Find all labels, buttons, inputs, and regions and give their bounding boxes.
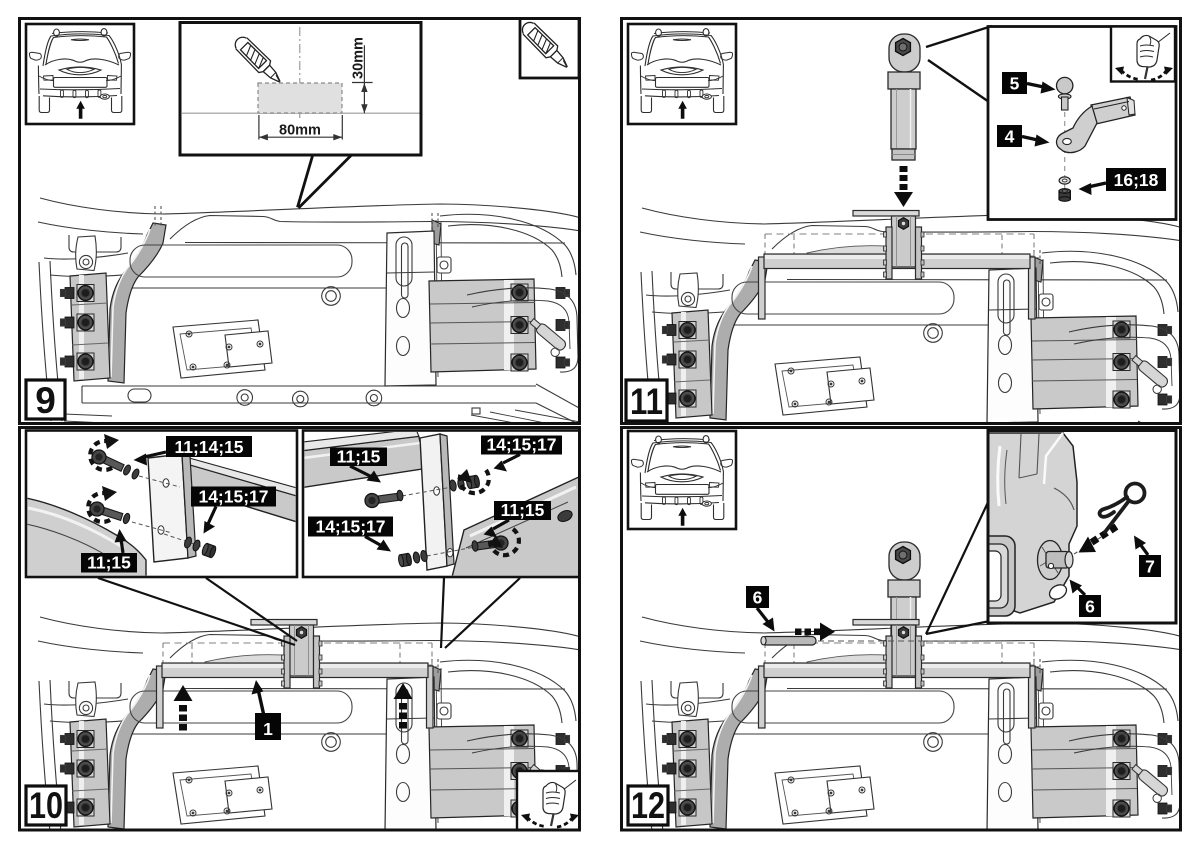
svg-text:16;18: 16;18 xyxy=(1114,170,1159,190)
svg-text:11;15: 11;15 xyxy=(87,553,131,573)
svg-text:10: 10 xyxy=(29,785,63,826)
svg-text:14;15;17: 14;15;17 xyxy=(315,517,385,537)
svg-text:80mm: 80mm xyxy=(279,123,321,139)
svg-text:11: 11 xyxy=(630,381,663,422)
svg-text:14;15;17: 14;15;17 xyxy=(486,435,556,455)
svg-text:11;15: 11;15 xyxy=(501,500,545,520)
svg-text:6: 6 xyxy=(753,588,763,608)
svg-text:12: 12 xyxy=(631,785,665,826)
svg-text:9: 9 xyxy=(35,380,56,421)
svg-text:7: 7 xyxy=(1145,557,1155,577)
svg-text:1: 1 xyxy=(263,719,273,739)
svg-text:11;15: 11;15 xyxy=(337,447,381,467)
svg-text:6: 6 xyxy=(1085,597,1095,617)
svg-text:11;14;15: 11;14;15 xyxy=(174,437,243,457)
svg-text:4: 4 xyxy=(1005,127,1015,147)
svg-text:5: 5 xyxy=(1010,74,1020,94)
svg-text:14;15;17: 14;15;17 xyxy=(198,487,268,507)
